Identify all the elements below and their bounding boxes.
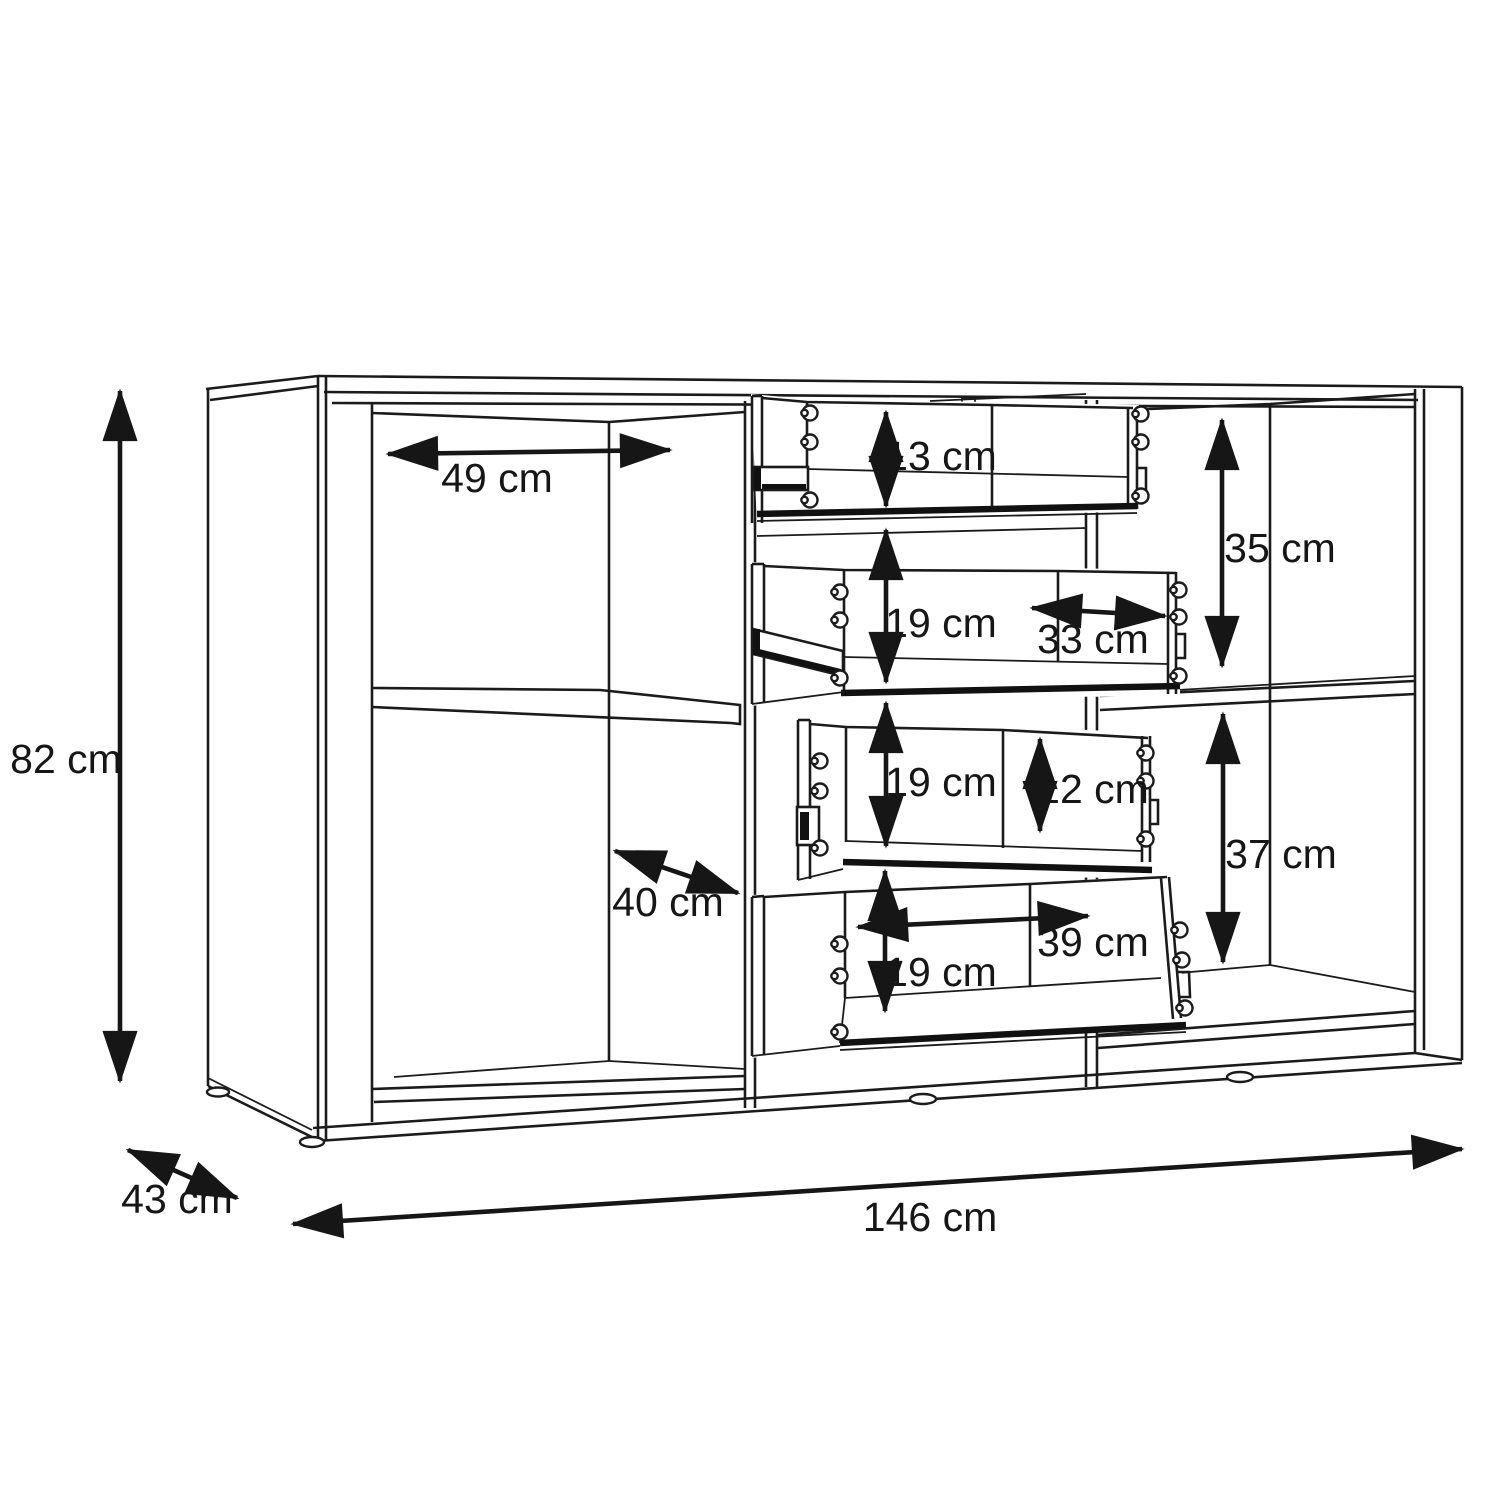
left-compartment	[372, 403, 745, 1122]
label-drawer1-height: 13 cm	[885, 433, 997, 479]
label-left-compartment-depth: 40 cm	[612, 879, 724, 925]
label-overall-depth: 43 cm	[121, 1176, 233, 1222]
label-drawer4-inner-width: 39 cm	[1037, 919, 1149, 965]
foot-glide	[300, 1137, 324, 1147]
label-right-lower-height: 37 cm	[1225, 831, 1337, 877]
label-drawer3-height: 19 cm	[885, 759, 997, 805]
diagram-canvas: 82 cm 43 cm 146 cm 49 cm 40 cm 13 cm 19 …	[0, 0, 1500, 1500]
arrow-left-compartment-width	[388, 450, 670, 454]
foot-glide	[910, 1094, 936, 1104]
label-overall-width: 146 cm	[863, 1194, 997, 1240]
label-overall-height: 82 cm	[10, 736, 122, 782]
label-left-compartment-width: 49 cm	[441, 455, 553, 501]
left-shelf	[372, 688, 740, 724]
furniture-dimension-diagram: 82 cm 43 cm 146 cm 49 cm 40 cm 13 cm 19 …	[0, 0, 1500, 1500]
label-right-upper-height: 35 cm	[1224, 525, 1336, 571]
label-drawer4-height: 19 cm	[885, 949, 997, 995]
label-drawer3-inner-height: 12 cm	[1037, 766, 1149, 812]
label-drawer2-inner-width: 33 cm	[1037, 616, 1149, 662]
foot-glide	[207, 1088, 229, 1097]
foot-glide	[1227, 1072, 1253, 1082]
label-drawer2-height: 19 cm	[885, 600, 997, 646]
